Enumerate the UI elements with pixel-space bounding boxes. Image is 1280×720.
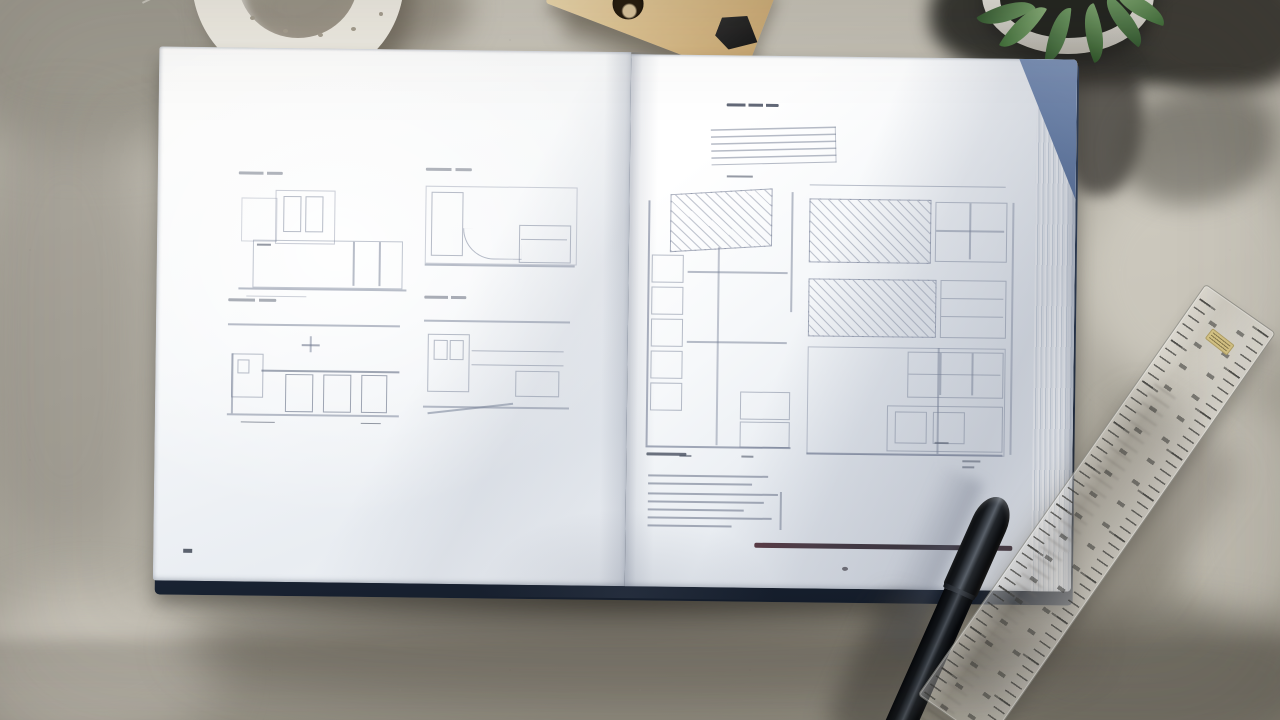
spine-bottom-shade (477, 506, 778, 600)
wood-hole (608, 0, 648, 24)
photo-scene (0, 0, 1280, 720)
left-page-shadow-wedge (153, 46, 631, 586)
ring-hole-dot (379, 12, 383, 16)
ring-hole-dot (250, 16, 255, 20)
spine-gutter (599, 52, 660, 587)
ring-hole-dot (283, 29, 288, 33)
ring-hole-dot (318, 33, 323, 37)
left-strip-shade (0, 120, 160, 540)
ruler-label-text-marks (1209, 332, 1231, 351)
ring-hole-dot (351, 27, 356, 31)
book-page-left (153, 46, 631, 586)
